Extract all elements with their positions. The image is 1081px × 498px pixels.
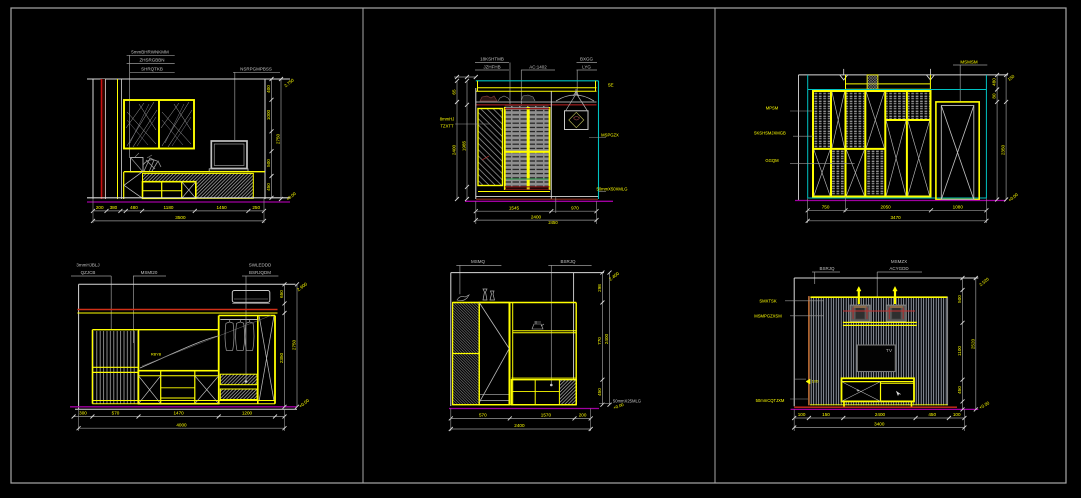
svg-text:50mmX25MLG: 50mmX25MLG xyxy=(613,398,641,403)
svg-text:2050: 2050 xyxy=(880,205,891,210)
svg-text:750: 750 xyxy=(822,205,830,210)
svg-text:200: 200 xyxy=(579,413,587,418)
svg-text:BSRJQ: BSRJQ xyxy=(560,259,576,264)
svg-text:JZHFHB: JZHFHB xyxy=(483,65,500,70)
svg-text:380: 380 xyxy=(110,205,118,210)
svg-text:300: 300 xyxy=(79,411,87,416)
svg-text:8mmHJ: 8mmHJ xyxy=(440,117,454,122)
svg-text:80: 80 xyxy=(992,93,997,99)
svg-text:MPSM: MPSM xyxy=(766,106,779,111)
svg-text:400: 400 xyxy=(266,85,271,93)
svg-text:SHRQTKB: SHRQTKB xyxy=(141,67,163,72)
svg-text:GGQM: GGQM xyxy=(765,158,779,163)
svg-text:ACYGDD: ACYGDD xyxy=(889,266,909,271)
svg-text:MSMSM: MSMSM xyxy=(960,60,978,65)
svg-text:100: 100 xyxy=(798,412,806,417)
svg-text:3mmHJBLJ: 3mmHJBLJ xyxy=(76,263,99,268)
svg-text:100: 100 xyxy=(812,379,819,384)
svg-text:TV: TV xyxy=(886,348,893,354)
svg-text:450: 450 xyxy=(266,183,271,191)
svg-text:570: 570 xyxy=(112,411,120,416)
svg-text:BSRJQDM: BSRJQDM xyxy=(249,270,271,275)
svg-text:450: 450 xyxy=(928,412,936,417)
svg-text:1450: 1450 xyxy=(216,205,227,210)
svg-text:ZHSRGBBN: ZHSRGBBN xyxy=(139,58,164,63)
svg-text:2400: 2400 xyxy=(452,144,457,155)
svg-text:2520: 2520 xyxy=(970,338,975,349)
svg-text:2450: 2450 xyxy=(548,220,558,225)
svg-text:5KSHSMJXMGB: 5KSHSMJXMGB xyxy=(754,131,786,136)
svg-text:3470: 3470 xyxy=(890,215,901,220)
svg-text:2400: 2400 xyxy=(604,333,609,344)
svg-text:18KSHTMB: 18KSHTMB xyxy=(480,56,504,61)
svg-text:3400: 3400 xyxy=(874,422,885,427)
svg-text:BSRJQ: BSRJQ xyxy=(819,266,835,271)
svg-text:2750: 2750 xyxy=(276,133,281,144)
svg-text:1100: 1100 xyxy=(957,346,962,356)
svg-text:450: 450 xyxy=(957,386,962,394)
svg-text:TZXTT: TZXTT xyxy=(440,124,453,129)
svg-text:2350: 2350 xyxy=(1001,144,1006,155)
svg-text:AC:1402: AC:1402 xyxy=(529,65,547,70)
svg-text:5E: 5E xyxy=(608,83,614,88)
svg-text:50mmX50XMLG: 50mmX50XMLG xyxy=(597,187,628,192)
svg-text:450: 450 xyxy=(597,388,602,396)
svg-text:150: 150 xyxy=(822,412,830,417)
svg-text:100: 100 xyxy=(953,412,961,417)
svg-text:MSMt20: MSMt20 xyxy=(141,270,158,275)
svg-text:MSMQ: MSMQ xyxy=(471,259,485,264)
svg-text:MSPGZX: MSPGZX xyxy=(601,133,619,138)
svg-text:970: 970 xyxy=(571,205,579,210)
svg-text:3500: 3500 xyxy=(175,215,186,220)
svg-text:SWLEDDD: SWLEDDD xyxy=(249,263,272,268)
svg-text:4000: 4000 xyxy=(176,422,187,427)
svg-text:1470: 1470 xyxy=(173,411,184,416)
svg-text:2400: 2400 xyxy=(875,412,886,417)
svg-text:2400: 2400 xyxy=(531,214,542,219)
svg-text:1180: 1180 xyxy=(164,205,174,210)
svg-text:65: 65 xyxy=(452,89,457,95)
svg-text:500: 500 xyxy=(957,295,962,303)
svg-text:480: 480 xyxy=(130,205,138,210)
svg-text:1545: 1545 xyxy=(509,205,520,210)
svg-text:LYG: LYG xyxy=(582,65,591,70)
svg-text:MSMPGZXSM: MSMPGZXSM xyxy=(754,314,782,319)
svg-text:2750: 2750 xyxy=(292,339,297,350)
svg-text:1985: 1985 xyxy=(462,140,467,151)
svg-text:MSMZX: MSMZX xyxy=(891,259,907,264)
svg-text:+: + xyxy=(857,389,860,395)
svg-text:570: 570 xyxy=(479,413,487,418)
svg-text:2350: 2350 xyxy=(279,352,284,363)
svg-text:5mmBHRWNKMM: 5mmBHRWNKMM xyxy=(131,50,169,55)
svg-text:250: 250 xyxy=(252,205,260,210)
svg-text:1570: 1570 xyxy=(541,413,552,418)
svg-text:2400: 2400 xyxy=(514,423,525,428)
svg-text:QZJCB: QZJCB xyxy=(81,270,96,275)
svg-text:BXGG: BXGG xyxy=(580,56,594,61)
svg-text:200: 200 xyxy=(96,205,104,210)
svg-text:480: 480 xyxy=(992,78,997,86)
svg-text:1000: 1000 xyxy=(266,109,271,120)
svg-text:298: 298 xyxy=(597,284,602,292)
svg-text:500: 500 xyxy=(266,159,271,167)
svg-text:RBYB: RBYB xyxy=(151,353,162,357)
svg-text:650: 650 xyxy=(279,290,284,298)
svg-text:1080: 1080 xyxy=(953,205,964,210)
svg-text:50mmCQTJXM: 50mmCQTJXM xyxy=(756,398,785,403)
svg-text:NSRPGMPBSS: NSRPGMPBSS xyxy=(240,66,272,71)
svg-text:1200: 1200 xyxy=(242,411,253,416)
svg-text:SMXTSK: SMXTSK xyxy=(759,299,776,304)
svg-text:770: 770 xyxy=(597,337,602,345)
